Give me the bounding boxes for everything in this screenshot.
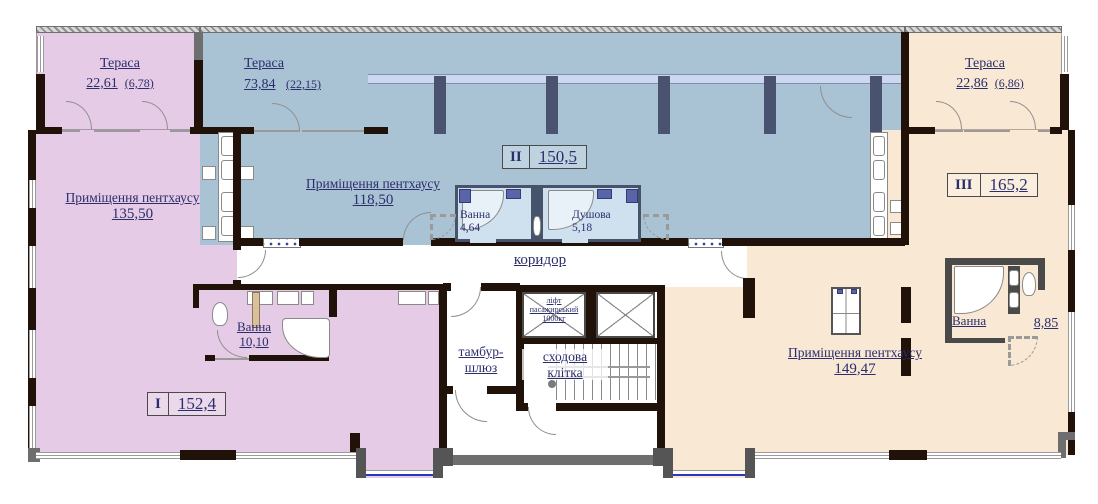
glass-facade-band: [368, 74, 905, 84]
wall-vestibule-top: [443, 283, 451, 291]
bath1-label: Ванна 10,10: [222, 320, 286, 350]
wall-elevator-divider: [586, 292, 596, 338]
door-arc-vestibule-top: [451, 287, 481, 317]
wall-unit2-corridor: [722, 238, 905, 246]
exterior-wall-top-left: [36, 26, 200, 33]
wall-vestibule-bottom: [443, 386, 453, 394]
wall-bath1-right: [329, 287, 337, 317]
wall-bottom-seg: [889, 450, 927, 460]
facade-column: [658, 76, 670, 134]
stove-symbol: [202, 226, 216, 240]
unit2-total-area: 150,5: [530, 146, 586, 168]
wall-bath3-bottom: [945, 338, 1005, 343]
bay-cap: [745, 448, 755, 478]
unit3-room-label: Приміщення пентхаусу 149,47: [770, 345, 940, 378]
fixture-accent: [837, 289, 843, 294]
wall-stairs-bottom: [520, 403, 528, 411]
unit1-area-box: I 152,4: [147, 392, 226, 416]
sill-line: [935, 130, 963, 132]
sill-line: [170, 130, 190, 132]
window-left: [29, 180, 36, 208]
wall-bath3-right: [1038, 258, 1045, 290]
bay-cap: [663, 448, 673, 478]
toilet: [533, 216, 541, 236]
exterior-wall-top-right: [905, 26, 1062, 33]
wall-bath3-top: [945, 258, 1045, 265]
unit2-room-label: Приміщення пентхаусу 118,50: [288, 176, 458, 209]
window-left: [29, 406, 36, 448]
stove-symbol: [202, 166, 216, 180]
wall-unit1-unit2-top: [194, 32, 203, 60]
exterior-wall-top-middle: [200, 26, 905, 33]
wall-elevator-top: [520, 285, 665, 292]
door-arc-corridor-west: [238, 250, 266, 278]
terrace1-areas: 22,61 (6,78): [45, 76, 195, 92]
bath2-door-gap: [470, 239, 496, 243]
facade-column: [434, 76, 446, 134]
terrace3-areas: 22,86 (6,86): [915, 76, 1065, 92]
wall-terrace1-left: [36, 74, 45, 130]
wall-pier: [901, 287, 911, 323]
unit3-hall-region: [747, 245, 905, 287]
unit3-numeral: III: [948, 174, 981, 196]
bay-window-unit1: [366, 470, 433, 476]
terrace2-label: Тераса: [244, 56, 314, 72]
corridor-label: коридор: [495, 252, 585, 269]
unit2-numeral: II: [503, 146, 530, 168]
wall-terrace1-sill: [36, 127, 62, 134]
elevator-label: ліфт пасажирський 1000кг: [523, 297, 585, 323]
unit3-area-box: III 165,2: [947, 173, 1038, 197]
door-arc-stairs: [528, 407, 556, 435]
fixture-accent: [626, 189, 638, 203]
floor-plan: ліфт пасажирський 1000кг Терас: [0, 0, 1098, 504]
wall-unit2-unit3: [901, 32, 909, 245]
bath3-label: Ванна: [952, 314, 1012, 329]
facade-column: [764, 76, 776, 134]
facade-column: [870, 76, 882, 132]
cabinet: [428, 291, 439, 305]
wall-vestibule-top: [481, 283, 520, 291]
fixture-accent: [459, 189, 471, 203]
wardrobe: [831, 287, 861, 335]
terrace2-areas: 73,84 (22,15): [244, 77, 404, 93]
sill-line: [964, 130, 1010, 132]
wall-bottom-seg: [180, 450, 236, 460]
wall-unit2-corridor: [237, 238, 263, 246]
sink: [1009, 292, 1019, 308]
washer: [247, 291, 273, 305]
unit1-numeral: I: [148, 393, 169, 415]
wall-stairs-right: [657, 287, 665, 455]
bay-cap: [356, 448, 366, 478]
fixture-accent: [597, 189, 612, 199]
wall-stairs-bottom: [556, 403, 665, 411]
unit2-area-box: II 150,5: [502, 145, 587, 169]
door-arc-entrance: [455, 390, 487, 422]
cabinet: [301, 291, 314, 305]
unit1-total-area: 152,4: [169, 393, 225, 415]
stove-symbol: [240, 166, 254, 180]
appliance: [873, 160, 885, 180]
sink: [277, 291, 299, 305]
unit3-total-area: 165,2: [981, 174, 1037, 196]
fixture-accent: [506, 189, 521, 199]
stair-start-post: [548, 380, 556, 388]
wall-unit3-stub: [743, 278, 755, 318]
shower2-label: Душова 5,18: [572, 209, 634, 235]
bath2-label: Ванна 4,64: [460, 209, 512, 235]
wall-corridor-south-left: [237, 284, 443, 290]
elevator-shaft: [596, 292, 655, 338]
bath2-door-gap: [562, 239, 588, 243]
appliance: [873, 136, 885, 156]
window-terrace1-left: [37, 36, 44, 72]
sink: [1009, 270, 1019, 286]
entrance-bottom-band: [443, 455, 665, 465]
facade-column: [546, 76, 558, 134]
vestibule-label: тамбур- шлюз: [444, 344, 518, 375]
wall-bath1-left: [193, 284, 199, 308]
appliance: [873, 192, 885, 212]
washer: [398, 291, 426, 305]
stairwell-label: сходова клітка: [522, 349, 608, 380]
fixture-accent: [851, 289, 857, 294]
sill-line: [62, 130, 80, 132]
wall-bath1-bottom: [205, 355, 215, 361]
window-right: [1068, 205, 1075, 250]
wall-bath1-left: [193, 284, 237, 290]
door-threshold: [215, 358, 249, 360]
terrace3-label: Тераса: [935, 56, 1035, 72]
wall-left: [28, 130, 36, 452]
wall-unit1-corridor: [233, 130, 241, 250]
sill-line: [302, 130, 364, 132]
vent-sill: [263, 238, 301, 248]
window-left: [29, 246, 36, 288]
sill-line: [94, 130, 140, 132]
terrace1-label: Тераса: [70, 56, 170, 72]
window-left: [29, 330, 36, 378]
bay-cap: [433, 448, 443, 478]
wall-unit1-unit2: [194, 60, 203, 130]
appliance: [873, 216, 885, 236]
wall-terrace2-sill: [364, 127, 388, 134]
window-terrace3-right: [1061, 36, 1068, 72]
bay-window-unit3: [673, 470, 745, 476]
vent-sill: [688, 238, 724, 248]
door-arc-unit3: [721, 251, 747, 279]
wall-unit2-corridor: [299, 238, 403, 246]
wall-vestibule-bottom: [487, 386, 520, 394]
unit1-room-label: Приміщення пентхаусу 135,50: [50, 190, 215, 223]
toilet: [1022, 272, 1036, 296]
unit1-bottom-region: [237, 287, 443, 455]
wall-bath3-left: [945, 258, 952, 343]
wall-terrace3-sill: [909, 127, 935, 134]
bath3-area: 8,85: [1022, 316, 1070, 332]
